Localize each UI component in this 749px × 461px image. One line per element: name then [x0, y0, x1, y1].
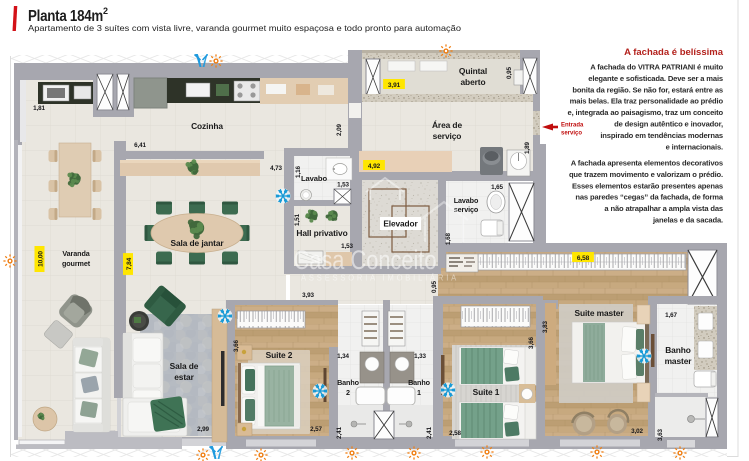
svg-text:Casa Conceito: Casa Conceito: [294, 245, 437, 275]
svg-text:3,63: 3,63: [657, 428, 664, 440]
svg-text:Elevador: Elevador: [383, 219, 418, 229]
svg-text:master: master: [665, 356, 693, 366]
svg-text:Cozinha: Cozinha: [191, 121, 223, 131]
svg-text:que trazem movimento e valoriz: que trazem movimento e valorizam o prédi…: [569, 170, 723, 179]
svg-text:Varanda: Varanda: [62, 249, 90, 258]
svg-text:bonita da região. Se não for,: bonita da região. Se não for, estará ent…: [572, 85, 723, 94]
svg-text:2: 2: [103, 6, 108, 16]
svg-text:Esses elementos estarão presen: Esses elementos estarão presentes apenas: [572, 181, 723, 190]
svg-text:serviço: serviço: [433, 131, 462, 141]
svg-text:4,92: 4,92: [368, 163, 381, 170]
svg-text:2,57: 2,57: [310, 426, 322, 433]
svg-text:1,65: 1,65: [491, 184, 503, 191]
svg-text:e internacionais.: e internacionais.: [666, 142, 723, 151]
svg-text:A fachada apresenta elementos: A fachada apresenta elementos decorativo…: [571, 159, 723, 168]
svg-text:aberto: aberto: [461, 77, 486, 87]
svg-text:1,34: 1,34: [337, 353, 349, 360]
svg-text:2,09: 2,09: [336, 123, 343, 135]
svg-text:2,41: 2,41: [336, 426, 343, 438]
svg-text:1,33: 1,33: [414, 353, 426, 360]
svg-text:a não atrapalhar a ampla vista: a não atrapalhar a ampla vista das: [604, 204, 723, 213]
svg-text:2,41: 2,41: [426, 426, 433, 438]
svg-text:e, integrada ao paisagismo, tr: e, integrada ao paisagismo, traz um conc…: [568, 108, 724, 117]
svg-text:Apartamento de 3 suítes com vi: Apartamento de 3 suítes com vista livre,…: [28, 23, 461, 33]
svg-text:1,51: 1,51: [294, 213, 301, 225]
svg-text:1,68: 1,68: [445, 232, 452, 244]
svg-text:3,66: 3,66: [528, 336, 535, 348]
svg-text:3,91: 3,91: [388, 82, 401, 89]
svg-text:Suite 2: Suite 2: [266, 350, 293, 360]
svg-text:2: 2: [346, 388, 350, 397]
svg-text:elegante e sofisticada. Deve s: elegante e sofisticada. Deve ser a mais: [588, 74, 723, 83]
svg-text:4,73: 4,73: [270, 165, 282, 172]
svg-text:6,58: 6,58: [577, 255, 590, 262]
svg-text:ASSESSORIA IMOBILIÁRIA: ASSESSORIA IMOBILIÁRIA: [301, 274, 459, 283]
svg-text:6,41: 6,41: [134, 142, 146, 149]
svg-text:estar: estar: [174, 372, 194, 382]
svg-text:Suite master: Suite master: [574, 308, 624, 318]
svg-text:A fachada é belíssima: A fachada é belíssima: [624, 47, 724, 58]
svg-text:3,02: 3,02: [631, 428, 643, 435]
svg-text:Lavabo: Lavabo: [301, 174, 327, 183]
svg-text:nas paredes “cegas” da fachada: nas paredes “cegas” da fachada, de forma: [575, 193, 724, 202]
svg-text:2,99: 2,99: [197, 426, 209, 433]
svg-text:3,93: 3,93: [302, 292, 314, 299]
svg-text:1,81: 1,81: [33, 105, 45, 112]
svg-text:1,53: 1,53: [337, 182, 349, 189]
svg-text:1: 1: [417, 388, 421, 397]
svg-text:1,89: 1,89: [524, 141, 531, 153]
svg-text:3,66: 3,66: [233, 339, 240, 351]
svg-text:Quintal: Quintal: [459, 66, 487, 76]
svg-text:Banho: Banho: [665, 345, 691, 355]
svg-text:3,83: 3,83: [542, 320, 549, 332]
svg-text:de design autêntico e inovador: de design autêntico e inovador,: [614, 120, 723, 129]
svg-text:Banho: Banho: [337, 378, 360, 387]
svg-text:Banho: Banho: [408, 378, 431, 387]
svg-text:Suite 1: Suite 1: [473, 387, 500, 397]
svg-text:A fachada do VITRA PATRIANI é: A fachada do VITRA PATRIANI é muito: [590, 63, 723, 72]
svg-text:Sala de: Sala de: [170, 361, 199, 371]
svg-text:mais belas. Ela traz personali: mais belas. Ela traz personalidade ao pr…: [570, 97, 724, 106]
svg-text:serviço: serviço: [561, 131, 582, 137]
svg-text:10,00: 10,00: [38, 251, 45, 267]
svg-text:2,58: 2,58: [449, 430, 461, 437]
svg-text:1,67: 1,67: [665, 312, 677, 319]
svg-text:Entrada: Entrada: [561, 123, 584, 129]
svg-text:janelas e da sacada.: janelas e da sacada.: [652, 216, 723, 225]
svg-text:7,84: 7,84: [126, 257, 133, 270]
svg-text:Hall privativo: Hall privativo: [296, 228, 347, 238]
svg-text:gourmet: gourmet: [62, 259, 91, 268]
svg-text:Sala de jantar: Sala de jantar: [170, 238, 224, 248]
svg-text:inspirado em tendências modern: inspirado em tendências modernas: [600, 131, 723, 140]
svg-text:Lavabo: Lavabo: [454, 196, 479, 205]
svg-text:Área de: Área de: [432, 119, 462, 130]
svg-text:0,95: 0,95: [506, 66, 513, 78]
